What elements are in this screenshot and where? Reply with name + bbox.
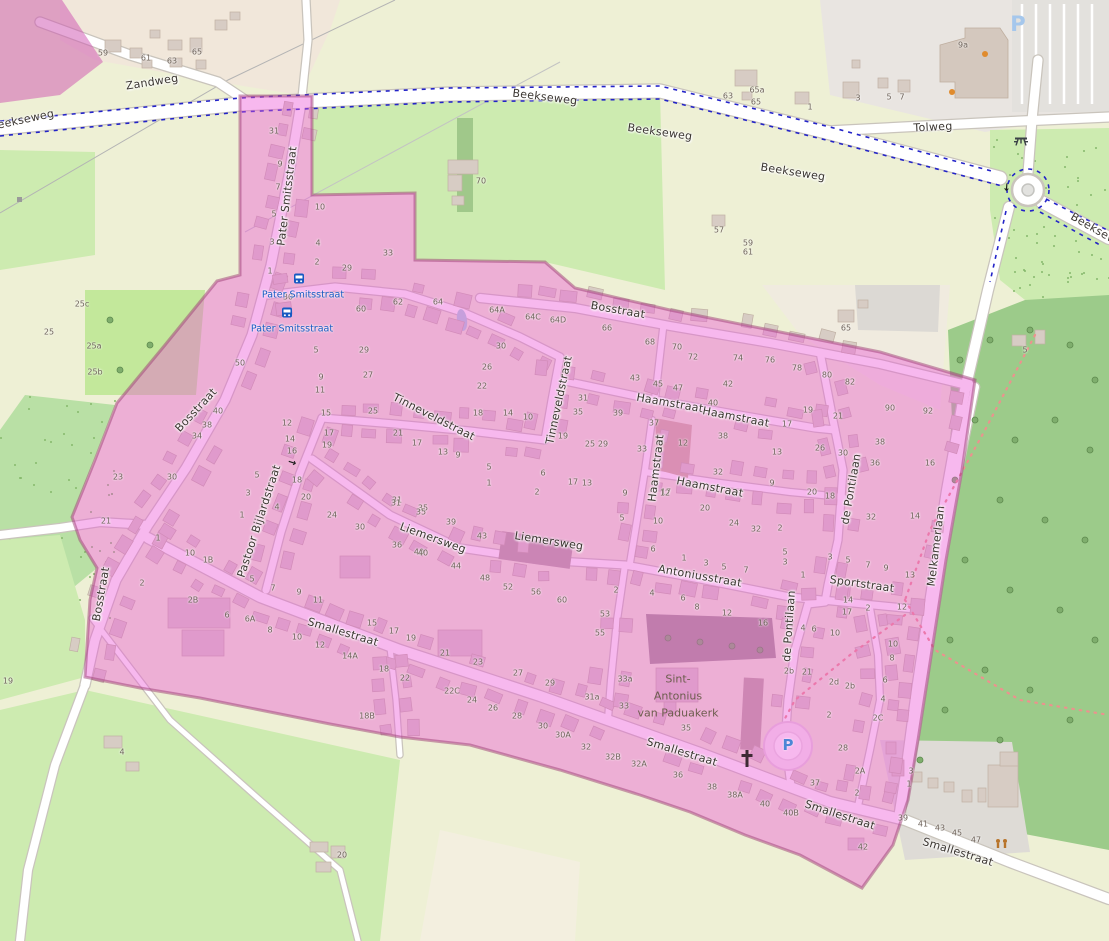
map-base-graphics [0, 0, 1109, 941]
map-canvas[interactable]: ZandwegBeeksewegBeeksewegBeeksewegBeekse… [0, 0, 1109, 941]
